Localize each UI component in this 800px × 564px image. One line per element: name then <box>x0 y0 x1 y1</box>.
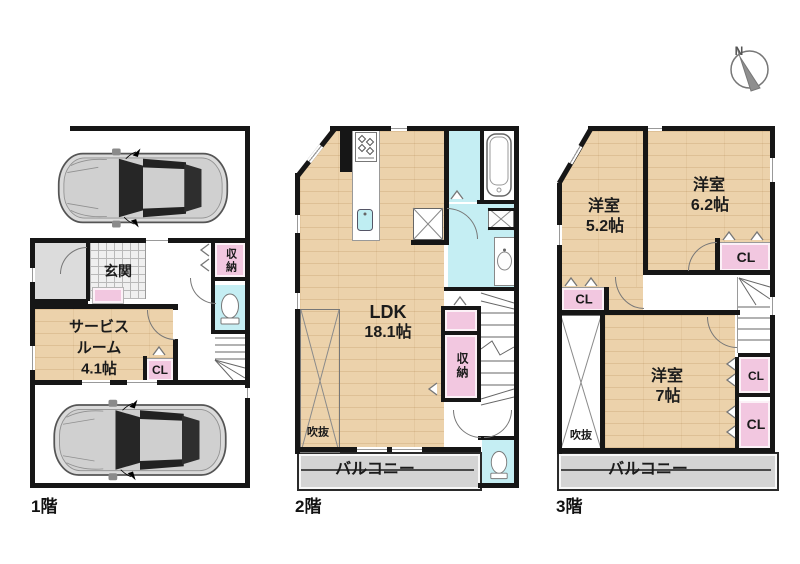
bathtub-icon <box>486 133 512 198</box>
wall <box>411 240 446 245</box>
door-swing-icon <box>453 296 467 306</box>
vanity-sink-icon <box>494 237 515 286</box>
stairs-edge-line <box>737 277 738 353</box>
bedroom3-size: 7帖 <box>656 389 681 405</box>
window <box>770 158 775 182</box>
window <box>30 268 35 282</box>
kitchen-sink-icon <box>357 209 373 231</box>
door-swing-icon <box>450 190 464 200</box>
wall <box>295 447 481 452</box>
window <box>557 225 562 245</box>
compass-icon <box>723 36 777 98</box>
entrance-edge-line <box>145 243 146 299</box>
window <box>295 293 300 309</box>
wall <box>557 448 775 453</box>
toilet-icon <box>489 450 509 480</box>
refrigerator-space-icon <box>413 208 443 240</box>
entrance-step <box>92 287 124 304</box>
wall <box>441 398 481 402</box>
wall <box>444 287 519 291</box>
wall <box>441 331 481 335</box>
door-swing-icon <box>722 231 736 241</box>
balcony-label: バルコニー <box>608 462 688 478</box>
wall <box>30 483 250 488</box>
window <box>391 126 407 131</box>
wall <box>173 339 178 385</box>
closet-label: CL <box>747 417 766 431</box>
wall <box>477 200 519 204</box>
wall <box>70 126 250 131</box>
toilet-icon <box>219 293 241 325</box>
floor1-label: 1階 <box>31 492 57 517</box>
wall <box>441 306 445 402</box>
wall <box>477 306 481 402</box>
car-icon <box>57 146 229 230</box>
closet-label: CL <box>748 370 764 382</box>
door-swing-icon <box>726 357 736 371</box>
ldk-label: LDK <box>370 303 407 321</box>
bedroom2-size: 6.2帖 <box>691 198 729 214</box>
storage-label: 収納 <box>456 352 468 380</box>
door-swing-icon <box>428 382 438 396</box>
wall <box>211 330 247 334</box>
wall <box>738 353 775 357</box>
bedroom3-label: 洋室 <box>651 369 683 385</box>
door-swing-icon <box>584 277 598 287</box>
wall <box>557 310 740 315</box>
wall <box>604 287 609 310</box>
wall <box>735 393 775 397</box>
storage-upper-2f <box>445 310 477 331</box>
washer-pan-icon <box>488 208 514 230</box>
void-label: 吹抜 <box>307 428 329 439</box>
wall <box>211 277 247 281</box>
bedroom2-label: 洋室 <box>693 178 725 194</box>
wall <box>143 356 147 381</box>
door-swing-icon <box>726 425 736 439</box>
balcony-label: バルコニー <box>335 462 415 478</box>
wall <box>478 483 519 488</box>
wall <box>600 310 605 448</box>
door-arc <box>453 410 481 438</box>
void-label: 吹抜 <box>570 431 592 442</box>
wall <box>245 126 250 488</box>
window <box>245 388 250 398</box>
window <box>295 215 300 233</box>
door-swing-icon <box>200 258 210 272</box>
door-arc <box>484 410 512 438</box>
wall <box>441 306 481 310</box>
stove-icon <box>355 132 377 162</box>
service-room-size: 4.1帖 <box>81 362 117 377</box>
door-swing-icon <box>726 405 736 419</box>
wall <box>514 126 519 488</box>
stairs-3f <box>738 277 770 353</box>
door-swing-icon <box>750 231 764 241</box>
wall <box>588 126 775 131</box>
closet-label: CL <box>575 293 592 306</box>
window <box>30 346 35 370</box>
stairs-2f <box>481 289 514 407</box>
door-swing-icon <box>726 373 736 387</box>
service-room-label: サービス <box>69 320 129 335</box>
window <box>648 126 662 131</box>
floor3-label: 3階 <box>556 492 582 517</box>
door-arc <box>190 278 216 304</box>
wall <box>340 126 352 172</box>
floor2-label: 2階 <box>295 492 321 517</box>
door-swing-icon <box>200 243 210 257</box>
storage-label: 収納 <box>225 248 236 274</box>
door-swing-icon <box>152 346 166 356</box>
entrance-label: 玄関 <box>104 264 132 278</box>
wall <box>211 238 215 281</box>
window <box>392 447 422 452</box>
wall <box>643 126 648 275</box>
door-swing-icon <box>564 277 578 287</box>
floorplan: 玄関 サービス ルーム 4.1帖 CL 収納 1階 <box>0 0 800 564</box>
bedroom1-label: 洋室 <box>588 199 620 215</box>
wall <box>557 183 562 454</box>
wall <box>480 128 484 202</box>
window <box>770 297 775 315</box>
window <box>127 380 157 385</box>
closet-label: CL <box>152 364 168 376</box>
wall <box>30 304 178 309</box>
stairs-1f <box>215 334 245 380</box>
service-room-label: ルーム <box>77 341 122 356</box>
bedroom1-size: 5.2帖 <box>586 219 624 235</box>
window <box>146 238 168 243</box>
car-icon <box>52 398 228 482</box>
window <box>357 447 387 452</box>
wall <box>330 126 519 131</box>
compass-north-label: N <box>735 45 744 57</box>
ldk-size: 18.1帖 <box>364 325 411 341</box>
closet-label: CL <box>737 250 756 264</box>
window <box>82 380 110 385</box>
